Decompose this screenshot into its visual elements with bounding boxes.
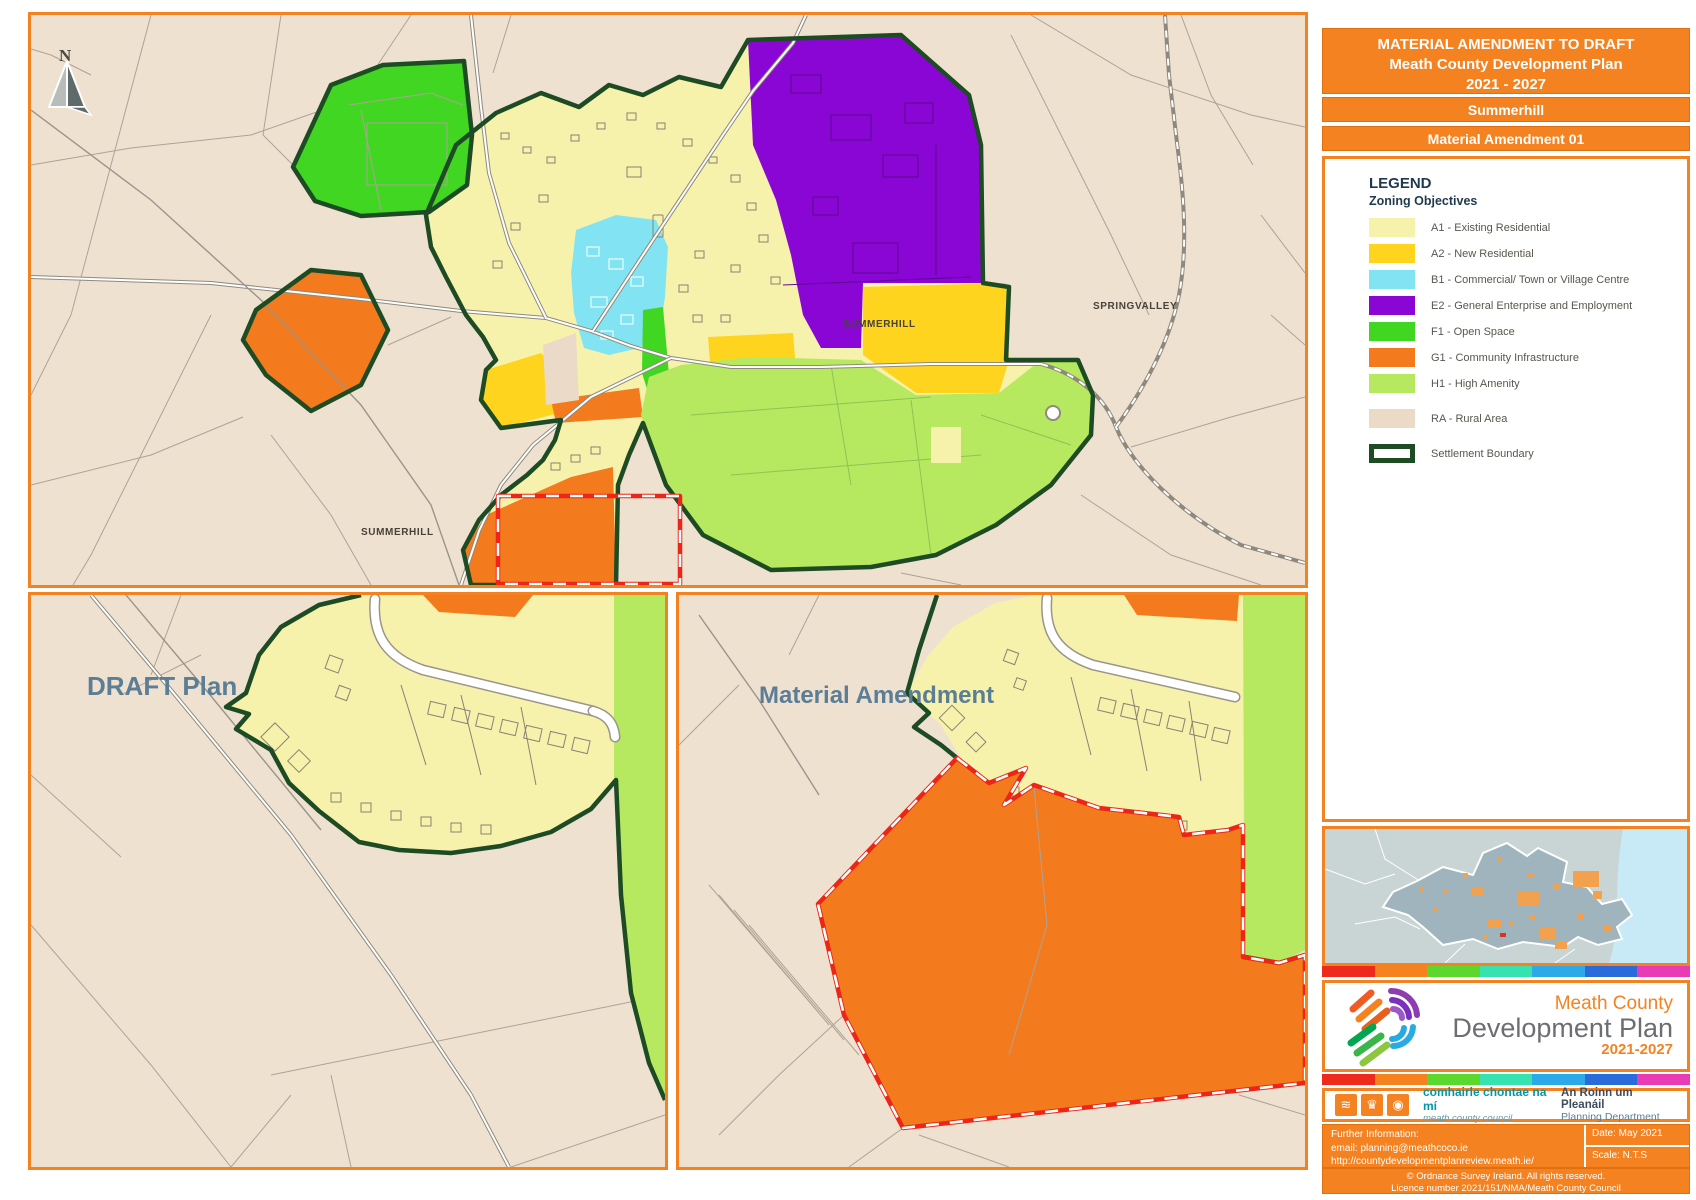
draft-plan-title: DRAFT Plan [87, 671, 237, 701]
spiral-logo-icon: ◉ [1387, 1094, 1409, 1116]
further-information-label: Further Information: [1331, 1128, 1584, 1142]
logo-development-plan: Development Plan [1445, 1014, 1673, 1042]
dept-name-english: Planning Department [1561, 1111, 1677, 1123]
title-line3: 2021 - 2027 [1323, 75, 1689, 95]
swatch-ra [1369, 409, 1415, 428]
locator-summerhill-marker [1500, 933, 1506, 937]
color-stripe-top [1322, 966, 1690, 977]
locator-map-svg [1325, 829, 1687, 963]
development-plan-logo: Meath County Development Plan 2021-2027 [1322, 980, 1690, 1072]
title-line1: MATERIAL AMENDMENT TO DRAFT [1323, 35, 1689, 55]
contact-email: email: planning@meathcoco.ie [1331, 1142, 1584, 1156]
plan-review-url: http://countydevelopmentplanreview.meath… [1331, 1155, 1584, 1169]
main-map-svg: SUMMERHILL SPRINGVALLEY SUMMERHILL N [31, 15, 1305, 585]
council-logos: ≋ ♛ ◉ [1335, 1094, 1409, 1116]
logo-meath-county: Meath County [1445, 994, 1673, 1014]
main-map-panel: SUMMERHILL SPRINGVALLEY SUMMERHILL N [28, 12, 1308, 588]
logo-years: 2021-2027 [1445, 1042, 1673, 1058]
council-bar: ≋ ♛ ◉ comhairle chontae na mí meath coun… [1322, 1088, 1690, 1122]
legend-item-h1: H1 - High Amenity [1369, 374, 1687, 393]
amendment-banner: Material Amendment 01 [1322, 126, 1690, 151]
legend-panel: LEGEND Zoning Objectives A1 - Existing R… [1322, 156, 1690, 822]
crown-logo-icon: ♛ [1361, 1094, 1383, 1116]
legend-item-b1: B1 - Commercial/ Town or Village Centre [1369, 270, 1687, 289]
osi-copyright: © Ordnance Survey Ireland. All rights re… [1323, 1171, 1689, 1183]
label-springvalley: SPRINGVALLEY [1093, 301, 1177, 312]
legend-heading: LEGEND [1369, 175, 1687, 192]
licence-number: Licence number 2021/151/NMA/Meath County… [1323, 1183, 1689, 1195]
material-amendment-svg: Material Amendment [679, 595, 1305, 1167]
swatch-a1 [1369, 218, 1415, 237]
swatch-settlement-boundary [1369, 444, 1415, 463]
legend-item-boundary: Settlement Boundary [1369, 444, 1687, 463]
document-page: SUMMERHILL SPRINGVALLEY SUMMERHILL N [0, 0, 1696, 1200]
legend-item-f1: F1 - Open Space [1369, 322, 1687, 341]
material-amendment-title: Material Amendment [759, 682, 994, 709]
map-scale: Scale: N.T.S [1586, 1145, 1689, 1167]
label-summerhill-town: SUMMERHILL [843, 319, 916, 330]
swatch-f1 [1369, 322, 1415, 341]
roundabout [1046, 406, 1060, 420]
color-stripe-bottom [1322, 1074, 1690, 1085]
draft-plan-panel: DRAFT Plan [28, 592, 668, 1170]
draft-plan-svg: DRAFT Plan [31, 595, 665, 1167]
h1-house-pocket [931, 427, 961, 463]
swatch-e2 [1369, 296, 1415, 315]
legend-item-a1: A1 - Existing Residential [1369, 218, 1687, 237]
title-line2: Meath County Development Plan [1323, 55, 1689, 75]
council-name-irish: comhairle chontae na mí [1423, 1086, 1561, 1112]
label-summerhill-rural: SUMMERHILL [361, 527, 434, 538]
swatch-b1 [1369, 270, 1415, 289]
legend-item-g1: G1 - Community Infrastructure [1369, 348, 1687, 367]
legend-item-e2: E2 - General Enterprise and Employment [1369, 296, 1687, 315]
material-amendment-panel: Material Amendment [676, 592, 1308, 1170]
locator-sea [1609, 829, 1687, 963]
footer-info: Further Information: email: planning@mea… [1322, 1124, 1690, 1168]
locator-map [1322, 826, 1690, 966]
title-block: MATERIAL AMENDMENT TO DRAFT Meath County… [1322, 28, 1690, 94]
council-name-english: meath county council [1423, 1113, 1561, 1124]
map-date: Date: May 2021 [1586, 1125, 1689, 1145]
legend-item-a2: A2 - New Residential [1369, 244, 1687, 263]
footer-copyright: © Ordnance Survey Ireland. All rights re… [1322, 1168, 1690, 1194]
zone-ra-pocket [543, 333, 579, 405]
swatch-h1 [1369, 374, 1415, 393]
swatch-a2 [1369, 244, 1415, 263]
legend-subheading: Zoning Objectives [1369, 194, 1687, 208]
settlement-banner: Summerhill [1322, 97, 1690, 122]
ma-zone-h1 [1243, 595, 1305, 963]
logo-swoosh-icon [1325, 983, 1445, 1069]
swatch-g1 [1369, 348, 1415, 367]
legend-item-ra: RA - Rural Area [1369, 409, 1687, 428]
wave-logo-icon: ≋ [1335, 1094, 1357, 1116]
dept-name-irish: An Roinn um Pleanáil [1561, 1087, 1677, 1111]
